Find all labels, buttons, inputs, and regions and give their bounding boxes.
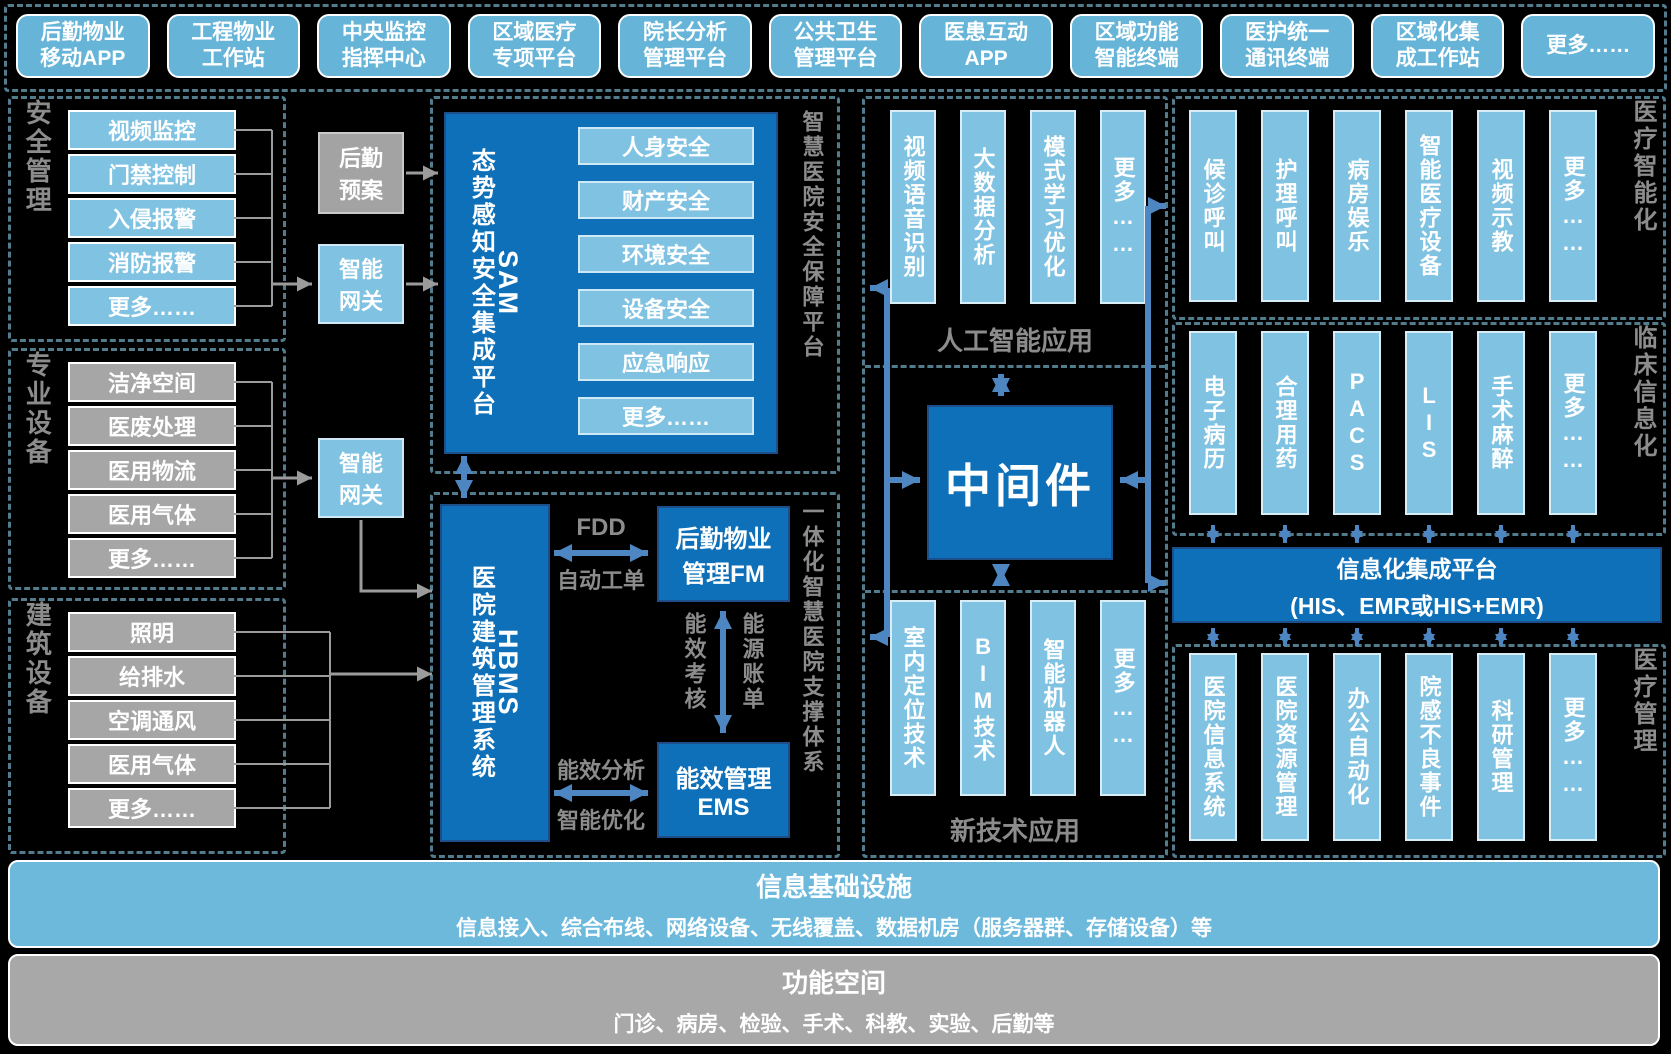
- functional-space-bar: 功能空间 门诊、病房、检验、手术、科教、实验、后勤等: [8, 954, 1660, 1046]
- list-item: 给排水: [68, 656, 236, 696]
- list-item: 医用气体: [68, 744, 236, 784]
- divider-ai-bottom: [865, 365, 1165, 368]
- medical-management-label: 医疗管理: [1630, 647, 1655, 855]
- middleware-box: 中间件: [927, 405, 1113, 560]
- clinical-informatization-label: 临床信息化: [1630, 325, 1655, 533]
- list-item: 医院信息系统: [1189, 653, 1237, 841]
- link-label-fdd: FDD: [533, 514, 669, 542]
- list-item: 智能机器人: [1030, 600, 1076, 796]
- list-item: 医废处理: [68, 406, 236, 446]
- top-app-box: 中央监控 指挥中心: [317, 14, 451, 78]
- list-item: 视频监控: [68, 110, 236, 150]
- divider-newtech-top: [865, 590, 1165, 593]
- list-item: 合理用药: [1261, 331, 1309, 515]
- medical-intelligence-columns: 候诊呼叫护理呼叫病房娱乐智能医疗设备视频示教更多……: [1189, 110, 1597, 302]
- list-item: 更多……: [1100, 600, 1146, 796]
- top-app-box: 院长分析 管理平台: [618, 14, 752, 78]
- list-item: 科研管理: [1477, 653, 1525, 841]
- group-security-management: 安全管理 视频监控门禁控制入侵报警消防报警更多……: [8, 96, 286, 342]
- sam-platform-box: 态势感知安全集成平台 SAM 人身安全财产安全环境安全设备安全应急响应更多……: [444, 112, 778, 454]
- list-item: 更多……: [68, 788, 236, 828]
- info-infrastructure-subtitle: 信息接入、综合布线、网络设备、无线覆盖、数据机房（服务器群、存储设备）等: [456, 912, 1212, 942]
- info-infrastructure-title: 信息基础设施: [756, 867, 912, 904]
- list-item: PACS: [1333, 331, 1381, 515]
- list-item: 院感不良事件: [1405, 653, 1453, 841]
- integration-platform-line1: 信息化集成平台: [1337, 550, 1498, 584]
- ai-columns: 视频语音识别大数据分析模式学习优化更多……: [890, 110, 1146, 304]
- list-item: 人身安全: [578, 127, 754, 165]
- list-item: 病房娱乐: [1333, 110, 1381, 302]
- clinical-informatization-section: 电子病历合理用药PACSLIS手术麻醉更多…… 临床信息化: [1172, 322, 1666, 536]
- list-item: 更多……: [1100, 110, 1146, 304]
- newtech-columns: 室内定位技术BIM技术智能机器人更多……: [890, 600, 1146, 796]
- fm-box: 后勤物业 管理FM: [657, 506, 790, 602]
- list-item: 更多……: [68, 538, 236, 578]
- smart-gateway-2: 智能 网关: [318, 438, 404, 518]
- sam-items: 人身安全财产安全环境安全设备安全应急响应更多……: [578, 127, 754, 435]
- info-infrastructure-bar: 信息基础设施 信息接入、综合布线、网络设备、无线覆盖、数据机房（服务器群、存储设…: [8, 860, 1660, 948]
- group-items: 视频监控门禁控制入侵报警消防报警更多……: [68, 110, 236, 326]
- group-label: 建筑设备: [23, 601, 50, 851]
- list-item: 室内定位技术: [890, 600, 936, 796]
- list-item: LIS: [1405, 331, 1453, 515]
- list-item: 视频示教: [1477, 110, 1525, 302]
- medical-management-section: 医院信息系统医院资源管理办公自动化院感不良事件科研管理更多…… 医疗管理: [1172, 644, 1666, 858]
- ems-box: 能效管理 EMS: [657, 742, 790, 838]
- top-app-box: 工程物业 工作站: [167, 14, 301, 78]
- list-item: 护理呼叫: [1261, 110, 1309, 302]
- group-label: 专业设备: [23, 351, 50, 587]
- list-item: 电子病历: [1189, 331, 1237, 515]
- clinical-columns: 电子病历合理用药PACSLIS手术麻醉更多……: [1189, 331, 1597, 515]
- link-label-energy-assess: 能效考核: [676, 612, 712, 734]
- top-app-box: 区域医疗 专项平台: [468, 14, 602, 78]
- list-item: 智能医疗设备: [1405, 110, 1453, 302]
- list-item: 财产安全: [578, 181, 754, 219]
- list-item: 大数据分析: [960, 110, 1006, 304]
- smart-gateway-1: 智能 网关: [318, 244, 404, 324]
- sam-title: 态势感知安全集成平台 SAM: [456, 114, 534, 452]
- hbms-title-cn: 医院建筑管理系统: [468, 565, 493, 781]
- list-item: 更多……: [1549, 331, 1597, 515]
- list-item: 办公自动化: [1333, 653, 1381, 841]
- top-apps-band: 后勤物业 移动APP工程物业 工作站中央监控 指挥中心区域医疗 专项平台院长分析…: [4, 4, 1667, 92]
- medical-intelligence-label: 医疗智能化: [1630, 99, 1655, 317]
- top-app-box: 更多……: [1521, 14, 1655, 78]
- functional-space-title: 功能空间: [782, 963, 886, 1000]
- list-item: 手术麻醉: [1477, 331, 1525, 515]
- list-item: 视频语音识别: [890, 110, 936, 304]
- sam-title-cn: 态势感知安全集成平台: [468, 148, 493, 418]
- list-item: 应急响应: [578, 343, 754, 381]
- hbms-box: 医院建筑管理系统 HBMS: [440, 504, 550, 842]
- group-items: 照明给排水空调通风医用气体更多……: [68, 612, 236, 828]
- list-item: BIM技术: [960, 600, 1006, 796]
- list-item: 入侵报警: [68, 198, 236, 238]
- top-app-box: 后勤物业 移动APP: [16, 14, 150, 78]
- list-item: 环境安全: [578, 235, 754, 273]
- list-item: 更多……: [1549, 110, 1597, 302]
- list-item: 医用气体: [68, 494, 236, 534]
- hbms-section-label: 一体化智慧医院支撑体系: [794, 500, 830, 845]
- newtech-section-label: 新技术应用: [865, 811, 1165, 848]
- list-item: 更多……: [578, 397, 754, 435]
- top-app-box: 公共卫生 管理平台: [769, 14, 903, 78]
- ai-section-label: 人工智能应用: [865, 321, 1165, 358]
- group-professional-equipment: 专业设备 洁净空间医废处理医用物流医用气体更多……: [8, 348, 286, 590]
- hbms-title-code: HBMS: [493, 629, 521, 717]
- integration-platform-line2: (HIS、EMR或HIS+EMR): [1290, 587, 1544, 621]
- list-item: 门禁控制: [68, 154, 236, 194]
- list-item: 医院资源管理: [1261, 653, 1309, 841]
- link-label-smart-opt: 智能优化: [533, 803, 669, 835]
- medical-management-columns: 医院信息系统医院资源管理办公自动化院感不良事件科研管理更多……: [1189, 653, 1597, 841]
- top-app-box: 区域化集 成工作站: [1371, 14, 1505, 78]
- top-app-box: 医护统一 通讯终端: [1220, 14, 1354, 78]
- list-item: 候诊呼叫: [1189, 110, 1237, 302]
- group-building-equipment: 建筑设备 照明给排水空调通风医用气体更多……: [8, 598, 286, 854]
- list-item: 医用物流: [68, 450, 236, 490]
- list-item: 更多……: [1549, 653, 1597, 841]
- logistics-plan-box: 后勤 预案: [318, 132, 404, 214]
- integration-platform-bar: 信息化集成平台 (HIS、EMR或HIS+EMR): [1172, 547, 1662, 623]
- functional-space-subtitle: 门诊、病房、检验、手术、科教、实验、后勤等: [614, 1008, 1055, 1038]
- sam-title-code: SAM: [493, 250, 521, 316]
- list-item: 洁净空间: [68, 362, 236, 402]
- top-apps-row: 后勤物业 移动APP工程物业 工作站中央监控 指挥中心区域医疗 专项平台院长分析…: [7, 7, 1664, 85]
- sam-section-label: 智慧医院安全保障平台: [794, 110, 830, 450]
- top-app-box: 医患互动 APP: [919, 14, 1053, 78]
- architecture-diagram: 后勤物业 移动APP工程物业 工作站中央监控 指挥中心区域医疗 专项平台院长分析…: [0, 0, 1671, 1054]
- list-item: 设备安全: [578, 289, 754, 327]
- link-label-energy-analysis: 能效分析: [533, 753, 669, 785]
- list-item: 空调通风: [68, 700, 236, 740]
- list-item: 模式学习优化: [1030, 110, 1076, 304]
- list-item: 消防报警: [68, 242, 236, 282]
- group-label: 安全管理: [23, 99, 50, 339]
- medical-intelligence-section: 候诊呼叫护理呼叫病房娱乐智能医疗设备视频示教更多…… 医疗智能化: [1172, 96, 1666, 320]
- list-item: 更多……: [68, 286, 236, 326]
- link-label-auto-ticket: 自动工单: [533, 563, 669, 595]
- list-item: 照明: [68, 612, 236, 652]
- group-items: 洁净空间医废处理医用物流医用气体更多……: [68, 362, 236, 578]
- link-label-energy-bill: 能源账单: [734, 612, 770, 734]
- top-app-box: 区域功能 智能终端: [1070, 14, 1204, 78]
